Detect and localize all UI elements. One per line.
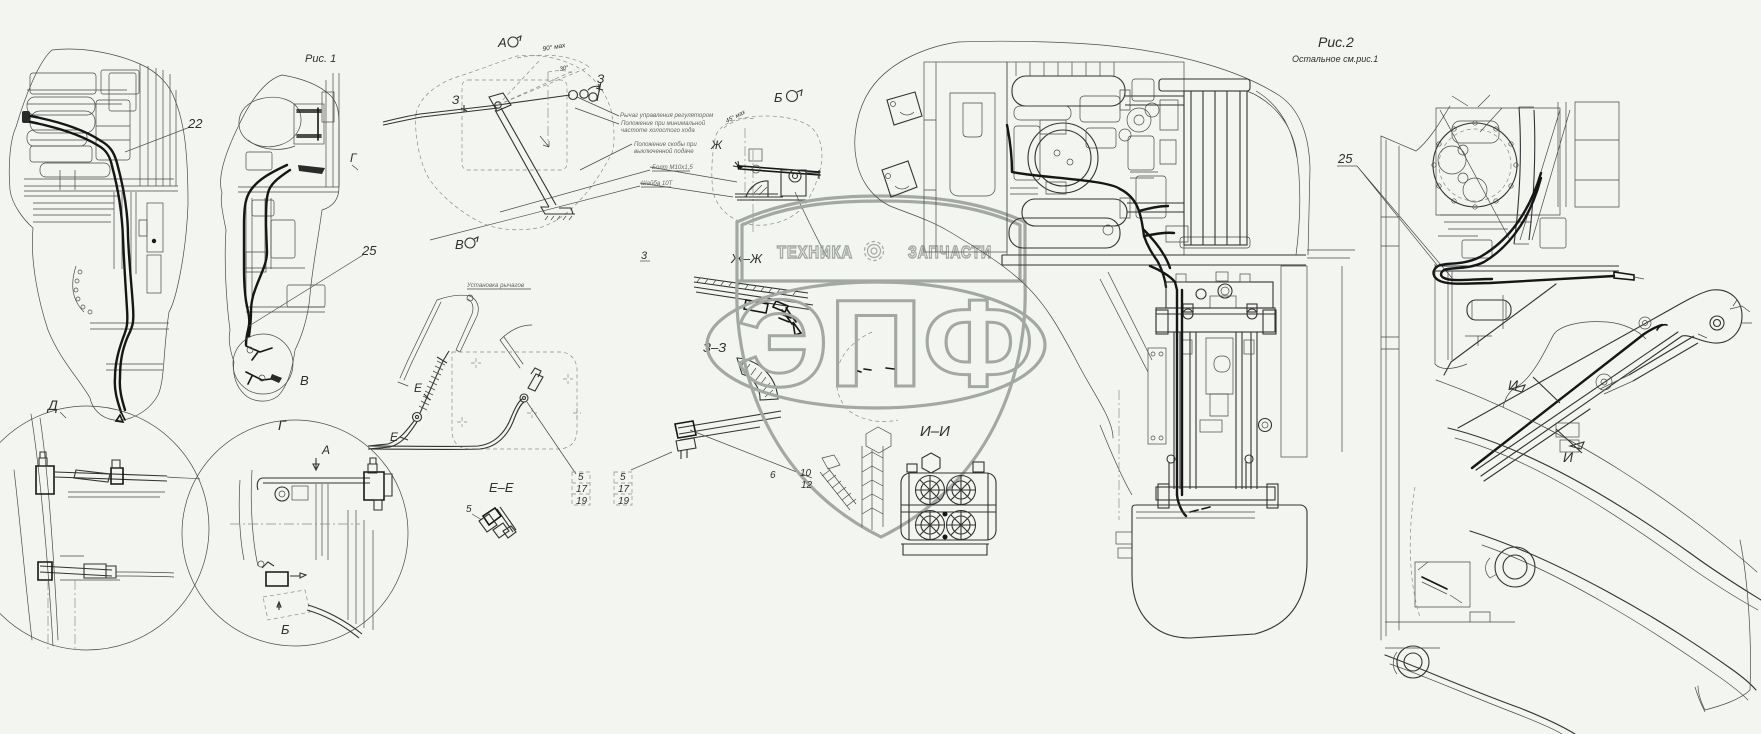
svg-text:Б: Б — [774, 90, 783, 105]
svg-text:И: И — [1563, 449, 1574, 465]
svg-text:Шайба 10Т: Шайба 10Т — [641, 180, 674, 187]
svg-text:Болт М10х1,5: Болт М10х1,5 — [652, 164, 693, 171]
svg-text:3: 3 — [641, 250, 648, 262]
svg-text:Положение при минимальной: Положение при минимальной — [621, 120, 706, 127]
svg-text:Положение скобы при: Положение скобы при — [634, 141, 697, 148]
svg-text:17: 17 — [576, 484, 588, 495]
svg-text:5: 5 — [466, 504, 472, 515]
svg-text:25: 25 — [1337, 151, 1353, 166]
svg-text:В: В — [455, 237, 464, 252]
svg-text:17: 17 — [618, 484, 630, 495]
svg-text:З: З — [452, 93, 460, 107]
svg-text:И: И — [1508, 377, 1519, 393]
svg-text:частоте холостого хода: частоте холостого хода — [621, 127, 695, 134]
svg-text:З: З — [597, 72, 605, 86]
svg-text:25: 25 — [361, 243, 377, 258]
svg-text:Остальное см.рис.1: Остальное см.рис.1 — [1292, 54, 1378, 64]
svg-text:И–И: И–И — [920, 423, 950, 440]
svg-text:Рис. 1: Рис. 1 — [305, 53, 336, 65]
svg-text:5: 5 — [578, 472, 584, 483]
svg-text:10: 10 — [800, 468, 812, 479]
svg-text:выключенной подаче: выключенной подаче — [634, 148, 694, 155]
svg-text:А: А — [497, 35, 507, 50]
svg-text:ЭПФ: ЭПФ — [736, 275, 1034, 413]
svg-text:5: 5 — [620, 472, 626, 483]
svg-text:Б: Б — [281, 622, 290, 637]
svg-text:6: 6 — [770, 470, 776, 481]
svg-text:А: А — [321, 443, 330, 457]
svg-text:Е–Е: Е–Е — [489, 480, 514, 495]
svg-text:Ж–Ж: Ж–Ж — [730, 251, 763, 266]
svg-text:Рис.2: Рис.2 — [1318, 34, 1354, 50]
svg-text:Ж: Ж — [710, 138, 723, 152]
svg-text:Рычаг управления регулятором: Рычаг управления регулятором — [620, 112, 714, 119]
svg-text:Е: Е — [390, 430, 399, 444]
svg-text:12: 12 — [801, 480, 813, 491]
svg-text:ТЕХНИКА: ТЕХНИКА — [777, 242, 853, 262]
svg-text:В: В — [300, 373, 309, 388]
svg-text:Е: Е — [414, 381, 423, 395]
svg-text:Установка рычагов: Установка рычагов — [466, 282, 524, 289]
svg-text:Д: Д — [46, 397, 58, 413]
svg-text:22: 22 — [187, 116, 203, 131]
